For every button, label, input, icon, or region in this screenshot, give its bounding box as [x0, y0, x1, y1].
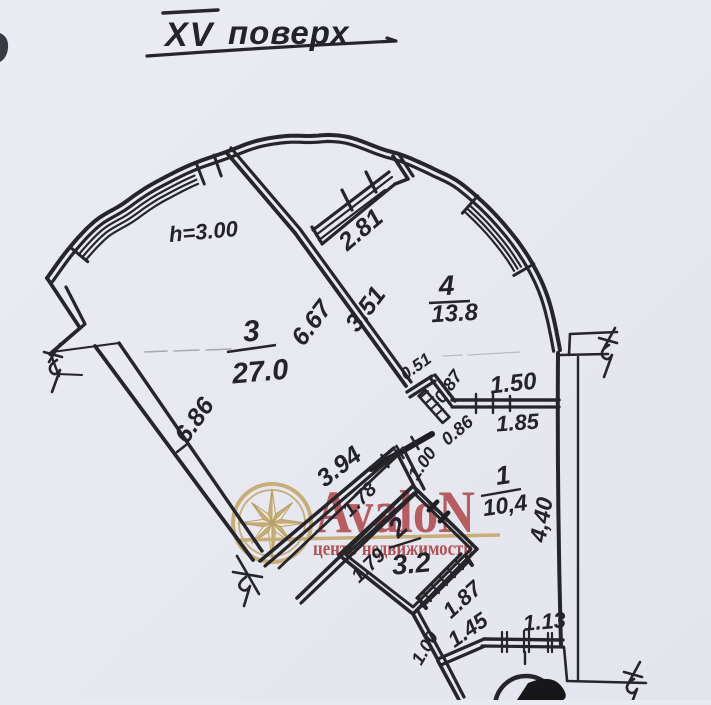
svg-text:1.13: 1.13 [522, 607, 567, 636]
svg-text:3: 3 [241, 314, 261, 348]
svg-text:XV: XV [163, 16, 216, 54]
svg-text:поверх: поверх [228, 14, 350, 51]
svg-text:1.85: 1.85 [495, 409, 540, 437]
svg-text:1.50: 1.50 [489, 368, 539, 400]
svg-text:27.0: 27.0 [230, 354, 290, 391]
svg-text:4: 4 [437, 270, 456, 302]
svg-text:3.2: 3.2 [390, 546, 432, 580]
svg-text:13.8: 13.8 [431, 299, 480, 328]
